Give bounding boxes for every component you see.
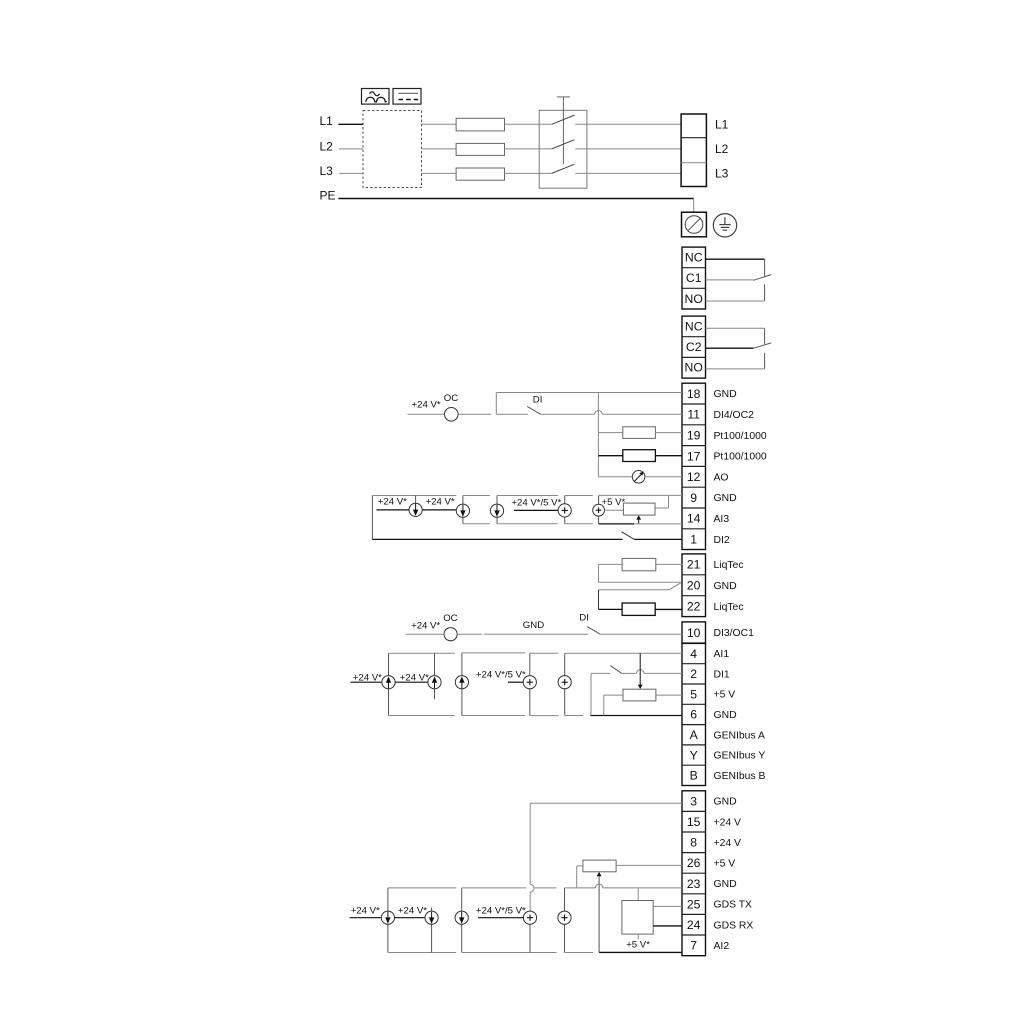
svg-text:17: 17	[687, 449, 701, 463]
svg-text:AI2: AI2	[714, 941, 730, 952]
svg-text:DI3/OC1: DI3/OC1	[714, 628, 755, 639]
svg-text:AO: AO	[714, 472, 729, 483]
svg-text:+24 V*: +24 V*	[426, 497, 455, 508]
svg-text:12: 12	[687, 470, 701, 484]
svg-text:LiqTec: LiqTec	[714, 560, 744, 571]
svg-text:Y: Y	[690, 748, 698, 762]
svg-text:8: 8	[690, 836, 697, 850]
svg-text:GND: GND	[714, 797, 737, 808]
svg-text:10: 10	[687, 626, 701, 640]
svg-text:NC: NC	[685, 251, 703, 265]
svg-text:24: 24	[687, 918, 701, 932]
svg-text:23: 23	[687, 877, 701, 891]
svg-text:+24 V*/5 V*: +24 V*/5 V*	[511, 498, 561, 509]
svg-text:5: 5	[690, 687, 697, 701]
svg-text:L2: L2	[715, 142, 729, 156]
svg-text:25: 25	[687, 897, 701, 911]
svg-text:+24 V*/5 V*: +24 V*/5 V*	[476, 905, 526, 916]
svg-text:GDS RX: GDS RX	[714, 920, 754, 931]
svg-text:+24 V*: +24 V*	[411, 620, 440, 631]
svg-text:+5 V: +5 V	[714, 690, 736, 701]
svg-text:2: 2	[690, 667, 697, 681]
svg-text:AI1: AI1	[714, 649, 730, 660]
svg-text:DI1: DI1	[714, 669, 730, 680]
svg-text:6: 6	[690, 708, 697, 722]
svg-text:+24 V*/5 V*: +24 V*/5 V*	[476, 670, 526, 681]
svg-text:GND: GND	[714, 493, 737, 504]
svg-text:DI2: DI2	[714, 535, 730, 546]
svg-text:C2: C2	[686, 340, 702, 354]
svg-text:+24 V*: +24 V*	[351, 905, 380, 916]
svg-text:AI3: AI3	[714, 514, 730, 525]
svg-text:NC: NC	[685, 320, 703, 334]
svg-text:GDS TX: GDS TX	[714, 900, 753, 911]
svg-text:9: 9	[690, 491, 697, 505]
svg-text:LiqTec: LiqTec	[714, 602, 744, 613]
svg-text:+24 V*: +24 V*	[412, 399, 441, 410]
svg-text:GND: GND	[714, 710, 737, 721]
svg-text:11: 11	[687, 408, 700, 422]
svg-text:+24 V: +24 V	[714, 838, 742, 849]
svg-text:DI: DI	[579, 612, 589, 623]
svg-text:+24 V: +24 V	[714, 817, 742, 828]
svg-text:7: 7	[690, 939, 697, 953]
svg-text:1: 1	[690, 533, 697, 547]
svg-text:OC: OC	[444, 393, 458, 404]
svg-text:Pt100/1000: Pt100/1000	[714, 431, 767, 442]
svg-text:22: 22	[687, 600, 701, 614]
svg-text:C1: C1	[686, 271, 702, 285]
svg-text:GENIbus A: GENIbus A	[714, 730, 765, 741]
svg-text:4: 4	[690, 647, 697, 661]
svg-text:L3: L3	[715, 167, 729, 181]
svg-text:GENIbus B: GENIbus B	[714, 771, 766, 782]
svg-text:A: A	[690, 728, 699, 742]
svg-text:L3: L3	[320, 164, 334, 178]
svg-text:18: 18	[687, 387, 701, 401]
svg-text:DI: DI	[533, 395, 543, 406]
svg-text:DI4/OC2: DI4/OC2	[714, 410, 755, 421]
svg-text:3: 3	[690, 794, 697, 808]
svg-text:+5 V: +5 V	[714, 859, 736, 870]
svg-text:+5 V*: +5 V*	[626, 939, 650, 950]
svg-text:21: 21	[687, 558, 701, 572]
svg-text:GND: GND	[714, 581, 737, 592]
svg-text:+24 V*: +24 V*	[378, 497, 407, 508]
svg-text:15: 15	[687, 815, 701, 829]
svg-text:+24 V*: +24 V*	[398, 905, 427, 916]
svg-text:26: 26	[687, 856, 701, 870]
svg-text:+5 V*: +5 V*	[602, 497, 626, 508]
svg-text:Pt100/1000: Pt100/1000	[714, 452, 767, 463]
svg-text:19: 19	[687, 429, 701, 443]
svg-text:GND: GND	[714, 389, 737, 400]
svg-text:GENIbus Y: GENIbus Y	[714, 751, 766, 762]
svg-text:L2: L2	[320, 140, 334, 154]
svg-text:NO: NO	[685, 292, 703, 306]
svg-text:20: 20	[687, 579, 701, 593]
svg-text:L1: L1	[715, 117, 729, 131]
svg-text:14: 14	[687, 512, 701, 526]
svg-text:GND: GND	[714, 879, 737, 890]
svg-text:B: B	[690, 769, 698, 783]
svg-text:PE: PE	[320, 189, 336, 203]
svg-text:NO: NO	[685, 361, 703, 375]
svg-text:GND: GND	[523, 620, 544, 631]
svg-text:OC: OC	[443, 613, 457, 624]
svg-text:L1: L1	[320, 114, 334, 128]
